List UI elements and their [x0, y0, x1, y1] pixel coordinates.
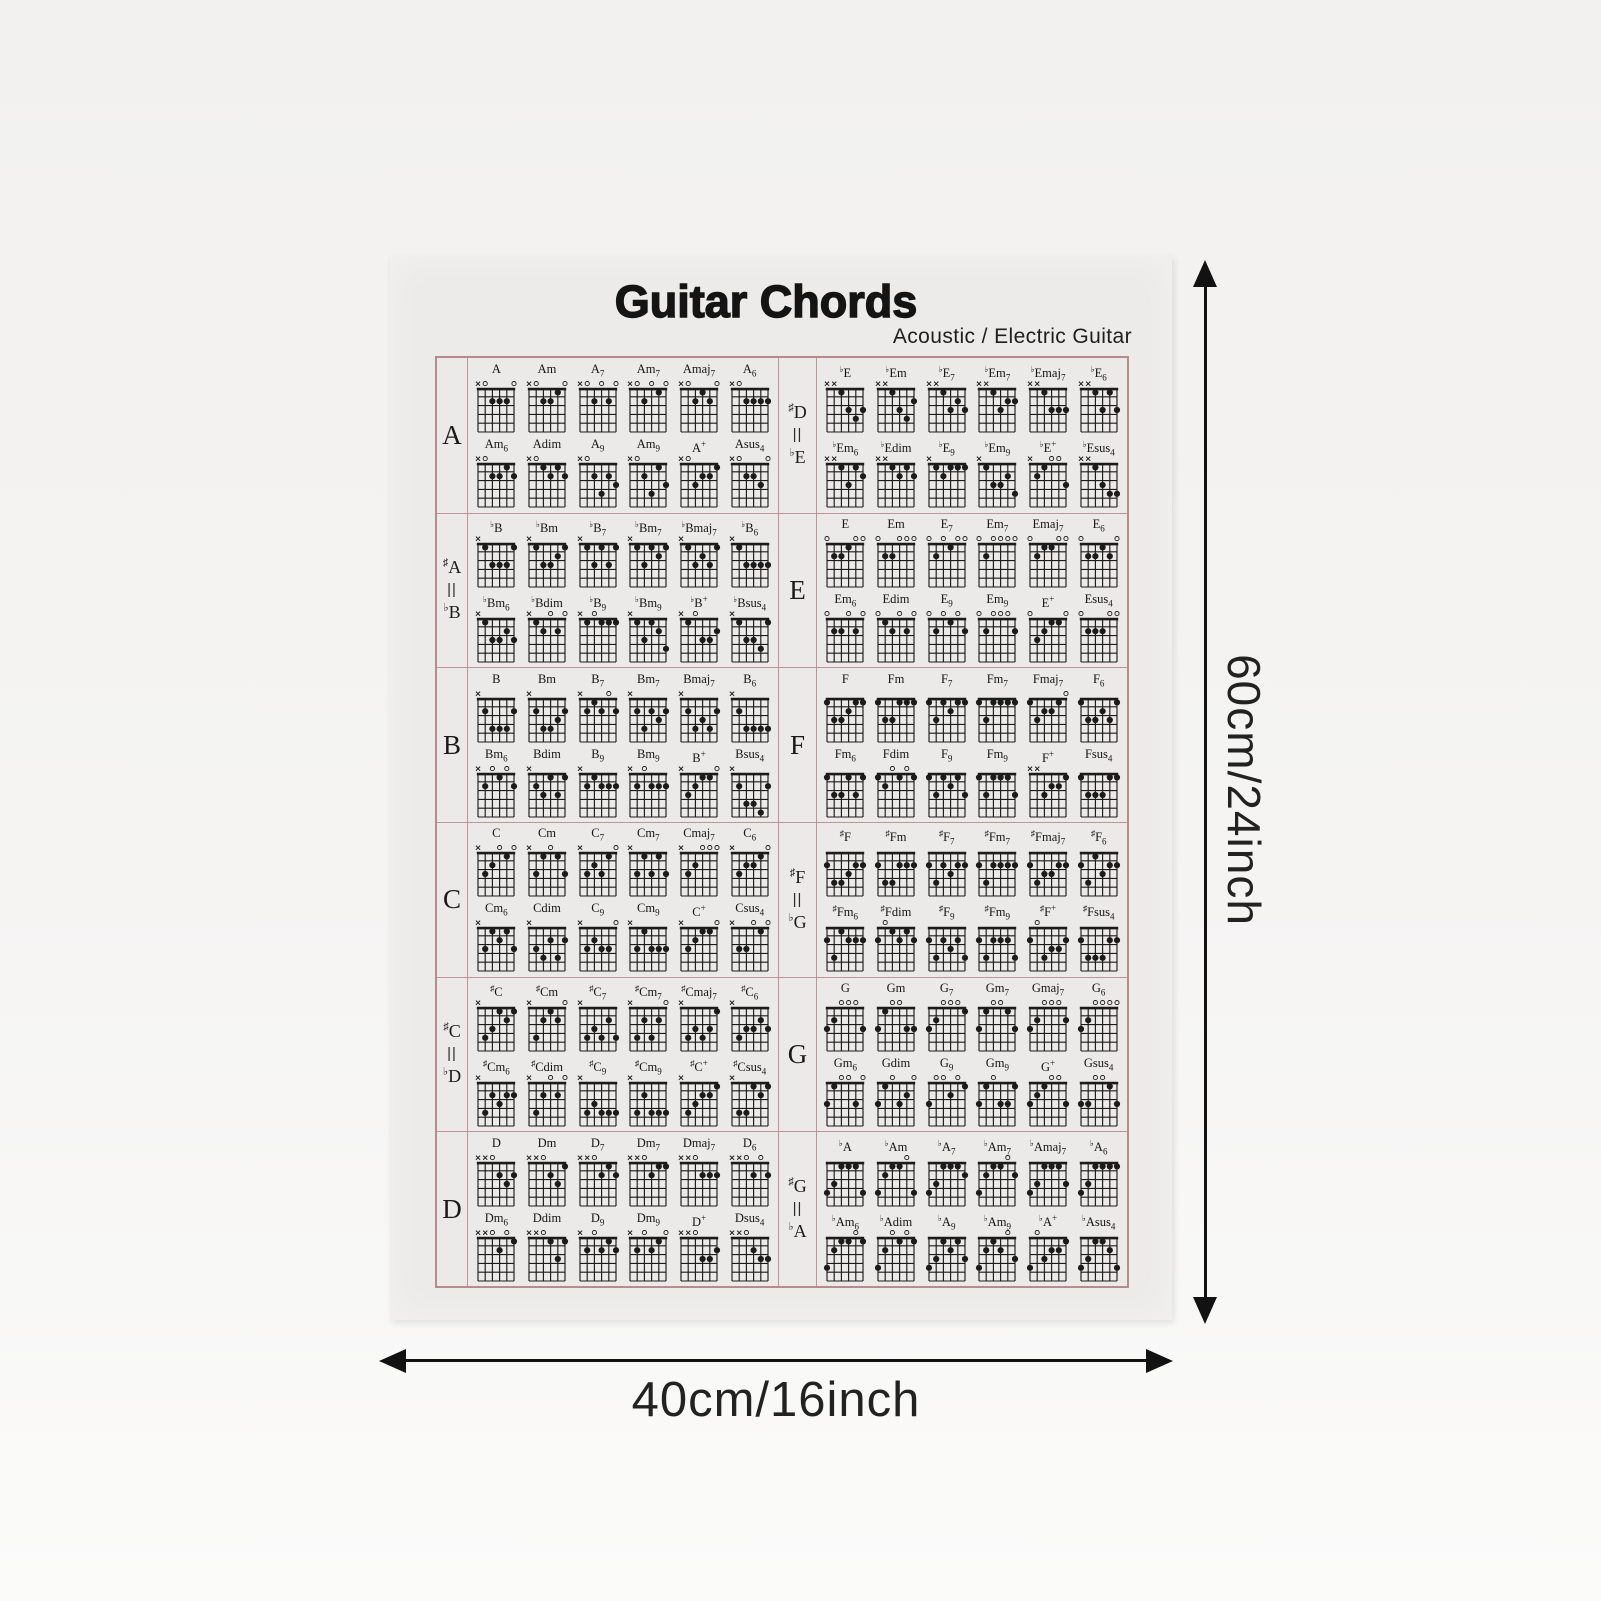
- fretboard-diagram-bAmaj7: [1025, 1151, 1071, 1208]
- chord-Am9: Am9: [623, 435, 674, 510]
- chord-name: ♭Asus4: [1082, 1211, 1116, 1226]
- chord-Fplus: F+: [1023, 745, 1074, 820]
- chord-Em6: Em6: [820, 590, 871, 665]
- chord-bBmaj7: ♭Bmaj7: [674, 516, 725, 591]
- fretboard-diagram-Am: [524, 377, 570, 434]
- fretboard-diagram-#Fm: [873, 841, 919, 898]
- chord-name: Bsus4: [735, 747, 764, 762]
- chord-name: ♭Em6: [832, 437, 858, 452]
- fretboard-diagram-Adim: [524, 452, 570, 509]
- fretboard-diagram-bAplus: [1025, 1226, 1071, 1283]
- arrow-right-icon: [1146, 1349, 1173, 1373]
- fretboard-diagram-C: [473, 841, 519, 898]
- chord-Fm9: Fm9: [972, 745, 1023, 820]
- fretboard-diagram-Dm: [524, 1151, 570, 1208]
- section-Ab: ♭A♭Am♭A7♭Am7♭Amaj7♭A6♭Am6♭Adim♭A9♭Am9♭A+…: [816, 1132, 1127, 1286]
- chord-Fsus4: Fsus4: [1073, 745, 1124, 820]
- fretboard-diagram-A7: [575, 377, 621, 434]
- chord-bAm6: ♭Am6: [820, 1209, 871, 1284]
- fretboard-diagram-Fm9: [974, 762, 1020, 819]
- chord-name: A+: [692, 437, 706, 452]
- fretboard-diagram-C9: [575, 916, 621, 973]
- fretboard-diagram-Edim: [873, 607, 919, 664]
- chord-name: ♯Csus4: [733, 1056, 766, 1071]
- chord-#Fmaj7: ♯Fmaj7: [1023, 825, 1074, 900]
- chord-name: Fm7: [987, 672, 1008, 687]
- fretboard-diagram-Cm7: [625, 841, 671, 898]
- chord-#F: ♯F: [820, 825, 871, 900]
- chord-name: Em7: [986, 517, 1008, 532]
- chord-name: A: [492, 362, 501, 377]
- chord-Em9: Em9: [972, 590, 1023, 665]
- chord-name: D9: [591, 1211, 605, 1226]
- fretboard-diagram-Em: [873, 532, 919, 589]
- chord-G9: G9: [921, 1054, 972, 1129]
- chord-name: B9: [591, 747, 604, 762]
- chord-bAm9: ♭Am9: [972, 1209, 1023, 1284]
- fretboard-diagram-#Cm7: [625, 996, 671, 1053]
- chord-Esus4: Esus4: [1073, 590, 1124, 665]
- fretboard-diagram-Bdim: [524, 762, 570, 819]
- fretboard-diagram-bA7: [924, 1151, 970, 1208]
- chord-bA9: ♭A9: [921, 1209, 972, 1284]
- chord-name: Gmaj7: [1032, 981, 1064, 996]
- fretboard-diagram-Dsus4: [727, 1226, 773, 1283]
- fretboard-diagram-bAm7: [974, 1151, 1020, 1208]
- fretboard-diagram-bEdim: [873, 452, 919, 509]
- chord-name: ♭Amaj7: [1030, 1136, 1066, 1151]
- chord-name: Dm: [538, 1136, 557, 1151]
- fretboard-diagram-#F: [822, 841, 868, 898]
- section-F: FFmF7Fm7Fmaj7F6Fm6FdimF9Fm9F+Fsus4: [816, 668, 1127, 822]
- fretboard-diagram-Bm9: [625, 762, 671, 819]
- fretboard-diagram-B9: [575, 762, 621, 819]
- chord-name: Esus4: [1085, 592, 1113, 607]
- chord-bA: ♭A: [820, 1134, 871, 1209]
- chord-D6: D6: [724, 1134, 775, 1209]
- row-label-♯C: ♯C||♭D: [437, 978, 467, 1132]
- fretboard-diagram-F9: [924, 762, 970, 819]
- chord-name: ♭Edim: [880, 437, 911, 452]
- fretboard-diagram-Bmaj7: [676, 687, 722, 744]
- arrow-left-icon: [379, 1349, 406, 1373]
- chord-name: Edim: [882, 592, 909, 607]
- chord-name: Dm7: [637, 1136, 660, 1151]
- arrow-down-icon: [1193, 1297, 1217, 1324]
- chord-B6: B6: [724, 670, 775, 745]
- chord-name: Fm6: [835, 747, 856, 762]
- chord-name: ♭Em: [885, 362, 906, 377]
- chord-name: ♭Esus4: [1083, 437, 1115, 452]
- chord-name: Am9: [637, 437, 660, 452]
- chord-#F7: ♯F7: [921, 825, 972, 900]
- guitar-chords-poster: Guitar Chords Acoustic / Electric Guitar…: [390, 256, 1172, 1320]
- chord-name: Gdim: [882, 1056, 910, 1071]
- chord-C7: C7: [572, 825, 623, 900]
- chord-name: ♯Fdim: [881, 901, 912, 916]
- fretboard-diagram-#Fplus: [1025, 916, 1071, 973]
- chord-name: ♭Am9: [984, 1211, 1011, 1226]
- chord-name: D7: [591, 1136, 605, 1151]
- chord-bBplus: ♭B+: [674, 590, 725, 665]
- fretboard-diagram-D6: [727, 1151, 773, 1208]
- chord-#Fdim: ♯Fdim: [871, 900, 922, 975]
- chord-bAdim: ♭Adim: [871, 1209, 922, 1284]
- chord-name: ♭E+: [1040, 437, 1057, 452]
- chord-name: ♯Cdim: [531, 1056, 563, 1071]
- chord-bB7: ♭B7: [572, 516, 623, 591]
- chord-name: B6: [743, 672, 756, 687]
- chord-bEdim: ♭Edim: [871, 435, 922, 510]
- section-label: ♭B: [443, 601, 460, 623]
- chord-name: B: [492, 672, 500, 687]
- height-dimension-line: [1204, 282, 1207, 1300]
- chord-Bm: Bm: [522, 670, 573, 745]
- fretboard-diagram-D7: [575, 1151, 621, 1208]
- chord-bBdim: ♭Bdim: [522, 590, 573, 665]
- chord-name: ♭Em7: [984, 362, 1010, 377]
- chord-name: D+: [692, 1211, 706, 1226]
- chord-Cdim: Cdim: [522, 900, 573, 975]
- fretboard-diagram-Gm7: [974, 996, 1020, 1053]
- chord-name: ♭E6: [1091, 362, 1107, 377]
- chord-name: ♯Fm7: [985, 826, 1010, 841]
- fretboard-diagram-Fplus: [1025, 762, 1071, 819]
- chord-name: ♭Am7: [984, 1136, 1011, 1151]
- chord-table-row: AAAmA7Am7Amaj7A6Am6AdimA9Am9A+Asus4♯D||♭…: [437, 358, 1127, 513]
- chord-name: F7: [941, 672, 952, 687]
- chord-B9: B9: [572, 745, 623, 820]
- fretboard-diagram-#F7: [924, 841, 970, 898]
- chord-bEm9: ♭Em9: [972, 435, 1023, 510]
- chord-name: ♭Bmaj7: [681, 517, 717, 532]
- fretboard-diagram-#Csus4: [727, 1071, 773, 1128]
- width-dimension-label: 40cm/16inch: [632, 1372, 921, 1428]
- section-label: B: [443, 730, 461, 761]
- chord-name: ♯Cm: [536, 981, 558, 996]
- chord-Asus4: Asus4: [724, 435, 775, 510]
- chord-#Fm6: ♯Fm6: [820, 900, 871, 975]
- chord-Cplus: C+: [674, 900, 725, 975]
- enharmonic-equals-icon: ||: [793, 891, 803, 908]
- section-Csharp: ♯C♯Cm♯C7♯Cm7♯Cmaj7♯C6♯Cm6♯Cdim♯C9♯Cm9♯C+…: [467, 978, 778, 1132]
- chord-name: C: [492, 826, 500, 841]
- chord-bEmaj7: ♭Emaj7: [1023, 360, 1074, 435]
- chord-Aplus: A+: [674, 435, 725, 510]
- fretboard-diagram-Fmaj7: [1025, 687, 1071, 744]
- fretboard-diagram-Fm: [873, 687, 919, 744]
- chord-bEm6: ♭Em6: [820, 435, 871, 510]
- chord-name: ♯F6: [1091, 826, 1107, 841]
- chord-bAmaj7: ♭Amaj7: [1023, 1134, 1074, 1209]
- fretboard-diagram-bAm9: [974, 1226, 1020, 1283]
- fretboard-diagram-bB7: [575, 532, 621, 589]
- chord-G: G: [820, 980, 871, 1055]
- chord-D9: D9: [572, 1209, 623, 1284]
- fretboard-diagram-D9: [575, 1226, 621, 1283]
- chord-F: F: [820, 670, 871, 745]
- chord-#F6: ♯F6: [1073, 825, 1124, 900]
- chord-name: E9: [941, 592, 953, 607]
- row-label-E: E: [778, 514, 816, 668]
- fretboard-diagram-bEm6: [822, 452, 868, 509]
- fretboard-diagram-Gm: [873, 996, 919, 1053]
- chord-bAm7: ♭Am7: [972, 1134, 1023, 1209]
- row-label-B: B: [437, 668, 467, 822]
- chord-Eplus: E+: [1023, 590, 1074, 665]
- chord-Am7: Am7: [623, 360, 674, 435]
- fretboard-diagram-Gplus: [1025, 1071, 1071, 1128]
- chord-bBsus4: ♭Bsus4: [724, 590, 775, 665]
- chord-name: G7: [940, 981, 954, 996]
- fretboard-diagram-bE7: [924, 377, 970, 434]
- section-label: ♭D: [443, 1065, 461, 1087]
- section-B: BBmB7Bm7Bmaj7B6Bm6BdimB9Bm9B+Bsus4: [467, 668, 778, 822]
- chord-name: ♯Cm7: [635, 981, 662, 996]
- chord-name: ♯Cm9: [635, 1056, 662, 1071]
- fretboard-diagram-bBdim: [524, 607, 570, 664]
- chord-bBm: ♭Bm: [522, 516, 573, 591]
- chord-Cmaj7: Cmaj7: [674, 825, 725, 900]
- fretboard-diagram-Em9: [974, 607, 1020, 664]
- fretboard-diagram-Dm7: [625, 1151, 671, 1208]
- chord-name: Fdim: [883, 747, 909, 762]
- chord-name: ♯F9: [939, 901, 955, 916]
- chord-bB: ♭B: [471, 516, 522, 591]
- fretboard-diagram-Cplus: [676, 916, 722, 973]
- chord-name: Gm: [887, 981, 906, 996]
- section-label: D: [442, 1194, 462, 1225]
- chord-Edim: Edim: [871, 590, 922, 665]
- chord-name: ♭A7: [938, 1136, 956, 1151]
- chord-table-row: ♯A||♭B♭B♭Bm♭B7♭Bm7♭Bmaj7♭B6♭Bm6♭Bdim♭B9♭…: [437, 513, 1127, 668]
- chord-name: ♭E7: [939, 362, 955, 377]
- fretboard-diagram-#F9: [924, 916, 970, 973]
- chord-bE: ♭E: [820, 360, 871, 435]
- chord-name: Fm: [888, 672, 905, 687]
- section-Eb: ♭E♭Em♭E7♭Em7♭Emaj7♭E6♭Em6♭Edim♭E9♭Em9♭E+…: [816, 358, 1127, 513]
- chord-name: E7: [941, 517, 953, 532]
- chord-Bsus4: Bsus4: [724, 745, 775, 820]
- chord-Bm7: Bm7: [623, 670, 674, 745]
- chord-name: C+: [692, 901, 705, 916]
- chord-name: ♯F7: [939, 826, 955, 841]
- chord-name: Am7: [637, 362, 660, 377]
- chord-B7: B7: [572, 670, 623, 745]
- chord-Am6: Am6: [471, 435, 522, 510]
- row-label-♯D: ♯D||♭E: [778, 358, 816, 513]
- chord-name: Am6: [485, 437, 508, 452]
- chord-name: ♭Am: [885, 1136, 908, 1151]
- chord-name: Gm7: [986, 981, 1009, 996]
- chord-name: ♯C6: [741, 981, 758, 996]
- chord-#Fplus: ♯F+: [1023, 900, 1074, 975]
- fretboard-diagram-bEplus: [1025, 452, 1071, 509]
- chord-Fdim: Fdim: [871, 745, 922, 820]
- chord-name: C6: [743, 826, 756, 841]
- chord-name: Dsus4: [735, 1211, 765, 1226]
- width-dimension-line: [403, 1359, 1149, 1362]
- fretboard-diagram-Fdim: [873, 762, 919, 819]
- row-label-A: A: [437, 358, 467, 513]
- arrow-up-icon: [1193, 260, 1217, 287]
- section-label: ♯C: [443, 1021, 461, 1042]
- chord-E9: E9: [921, 590, 972, 665]
- chord-name: ♭E9: [939, 437, 955, 452]
- chord-Dm6: Dm6: [471, 1209, 522, 1284]
- section-A: AAmA7Am7Amaj7A6Am6AdimA9Am9A+Asus4: [467, 358, 778, 513]
- chord-Dm: Dm: [522, 1134, 573, 1209]
- chord-name: F+: [1042, 747, 1054, 762]
- chord-bEsus4: ♭Esus4: [1073, 435, 1124, 510]
- fretboard-diagram-bAdim: [873, 1226, 919, 1283]
- fretboard-diagram-#Fdim: [873, 916, 919, 973]
- chord-name: ♭Bm9: [635, 592, 662, 607]
- chord-name: Gm6: [834, 1056, 857, 1071]
- fretboard-diagram-Ddim: [524, 1226, 570, 1283]
- chord-Gm6: Gm6: [820, 1054, 871, 1129]
- fretboard-diagram-bEsus4: [1076, 452, 1122, 509]
- chord-name: Cmaj7: [683, 826, 715, 841]
- fretboard-diagram-Dmaj7: [676, 1151, 722, 1208]
- chord-bEm: ♭Em: [871, 360, 922, 435]
- fretboard-diagram-bA: [822, 1151, 868, 1208]
- fretboard-diagram-Cdim: [524, 916, 570, 973]
- chord-Fm7: Fm7: [972, 670, 1023, 745]
- fretboard-diagram-bBm: [524, 532, 570, 589]
- chord-Cm7: Cm7: [623, 825, 674, 900]
- chord-C6: C6: [724, 825, 775, 900]
- section-label: ♯G: [788, 1176, 807, 1197]
- fretboard-diagram-bE: [822, 377, 868, 434]
- chord-name: ♭Em9: [984, 437, 1010, 452]
- chord-bEplus: ♭E+: [1023, 435, 1074, 510]
- chord-name: G9: [940, 1056, 954, 1071]
- fretboard-diagram-E9: [924, 607, 970, 664]
- chord-name: Amaj7: [683, 362, 715, 377]
- chord-Fm6: Fm6: [820, 745, 871, 820]
- chord-Gsus4: Gsus4: [1073, 1054, 1124, 1129]
- chord-name: ♯Fm6: [833, 901, 858, 916]
- fretboard-diagram-Aplus: [676, 452, 722, 509]
- chord-Gm: Gm: [871, 980, 922, 1055]
- chord-Cm9: Cm9: [623, 900, 674, 975]
- row-label-C: C: [437, 823, 467, 977]
- chord-bBm6: ♭Bm6: [471, 590, 522, 665]
- fretboard-diagram-Bplus: [676, 762, 722, 819]
- chord-Em7: Em7: [972, 516, 1023, 591]
- chord-#Cm9: ♯Cm9: [623, 1054, 674, 1129]
- chord-Gplus: G+: [1023, 1054, 1074, 1129]
- fretboard-diagram-Gm6: [822, 1071, 868, 1128]
- chord-name: E+: [1042, 592, 1055, 607]
- fretboard-diagram-#C6: [727, 996, 773, 1053]
- fretboard-diagram-A9: [575, 452, 621, 509]
- fretboard-diagram-bEm7: [974, 377, 1020, 434]
- chord-#Fm7: ♯Fm7: [972, 825, 1023, 900]
- row-label-D: D: [437, 1132, 467, 1286]
- chord-name: ♯F+: [1040, 901, 1056, 916]
- chord-name: Gsus4: [1084, 1056, 1114, 1071]
- chord-Adim: Adim: [522, 435, 573, 510]
- section-label: ♭A: [788, 1220, 806, 1242]
- fretboard-diagram-Cmaj7: [676, 841, 722, 898]
- chord-#Cm: ♯Cm: [522, 980, 573, 1055]
- chord-Dsus4: Dsus4: [724, 1209, 775, 1284]
- chord-D7: D7: [572, 1134, 623, 1209]
- chord-name: Em: [887, 517, 904, 532]
- chord-E7: E7: [921, 516, 972, 591]
- chord-F6: F6: [1073, 670, 1124, 745]
- fretboard-diagram-Cm6: [473, 916, 519, 973]
- fretboard-diagram-bA9: [924, 1226, 970, 1283]
- fretboard-diagram-#Cm6: [473, 1071, 519, 1128]
- fretboard-diagram-bB6: [727, 532, 773, 589]
- fretboard-diagram-bEm: [873, 377, 919, 434]
- chord-bA7: ♭A7: [921, 1134, 972, 1209]
- fretboard-diagram-Am9: [625, 452, 671, 509]
- chord-name: ♯F: [840, 826, 851, 841]
- fretboard-diagram-Gdim: [873, 1071, 919, 1128]
- fretboard-diagram-C7: [575, 841, 621, 898]
- chord-bEm7: ♭Em7: [972, 360, 1023, 435]
- chord-Gm9: Gm9: [972, 1054, 1023, 1129]
- chord-name: Asus4: [735, 437, 765, 452]
- section-Fsharp: ♯F♯Fm♯F7♯Fm7♯Fmaj7♯F6♯Fm6♯Fdim♯F9♯Fm9♯F+…: [816, 823, 1127, 977]
- fretboard-diagram-Gmaj7: [1025, 996, 1071, 1053]
- chord-name: ♭B: [490, 517, 502, 532]
- fretboard-diagram-bBsus4: [727, 607, 773, 664]
- fretboard-diagram-Amaj7: [676, 377, 722, 434]
- chord-name: Bm6: [485, 747, 508, 762]
- chord-name: Csus4: [735, 901, 764, 916]
- fretboard-diagram-G7: [924, 996, 970, 1053]
- fretboard-diagram-Emaj7: [1025, 532, 1071, 589]
- row-label-♯G: ♯G||♭A: [778, 1132, 816, 1286]
- fretboard-diagram-E6: [1076, 532, 1122, 589]
- enharmonic-equals-icon: ||: [447, 581, 457, 598]
- chord-#Cm6: ♯Cm6: [471, 1054, 522, 1129]
- fretboard-diagram-B7: [575, 687, 621, 744]
- chord-name: G6: [1092, 981, 1106, 996]
- chord-name: C7: [591, 826, 604, 841]
- chord-#Fm9: ♯Fm9: [972, 900, 1023, 975]
- section-G: GGmG7Gm7Gmaj7G6Gm6GdimG9Gm9G+Gsus4: [816, 978, 1127, 1132]
- row-label-♯F: ♯F||♭G: [778, 823, 816, 977]
- fretboard-diagram-bEm9: [974, 452, 1020, 509]
- chord-Gmaj7: Gmaj7: [1023, 980, 1074, 1055]
- chord-E6: E6: [1073, 516, 1124, 591]
- chord-bAplus: ♭A+: [1023, 1209, 1074, 1284]
- fretboard-diagram-#C9: [575, 1071, 621, 1128]
- chord-name: A6: [743, 362, 757, 377]
- chord-name: E: [842, 517, 850, 532]
- fretboard-diagram-Gm9: [974, 1071, 1020, 1128]
- fretboard-diagram-Bm6: [473, 762, 519, 819]
- chord-name: ♯C7: [589, 981, 606, 996]
- row-label-♯A: ♯A||♭B: [437, 514, 467, 668]
- enharmonic-equals-icon: ||: [447, 1045, 457, 1062]
- chord-Bdim: Bdim: [522, 745, 573, 820]
- fretboard-diagram-Gsus4: [1076, 1071, 1122, 1128]
- chord-Cm6: Cm6: [471, 900, 522, 975]
- fretboard-diagram-E7: [924, 532, 970, 589]
- chord-name: Fsus4: [1085, 747, 1112, 762]
- section-E: EEmE7Em7Emaj7E6Em6EdimE9Em9E+Esus4: [816, 514, 1127, 668]
- fretboard-diagram-bAm6: [822, 1226, 868, 1283]
- chord-table-row: BBBmB7Bm7Bmaj7B6Bm6BdimB9Bm9B+Bsus4FFFmF…: [437, 667, 1127, 822]
- fretboard-diagram-F: [822, 687, 868, 744]
